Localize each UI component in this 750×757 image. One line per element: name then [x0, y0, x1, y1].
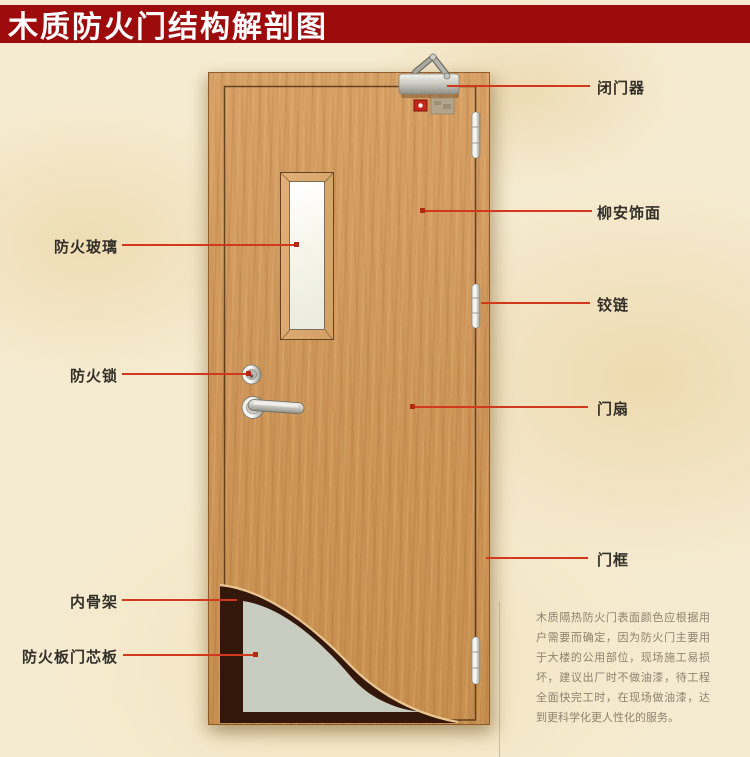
label-fire-lock: 防火锁: [0, 365, 118, 386]
label-hinge: 铰链: [597, 294, 629, 315]
callout-line-fire-glass: [122, 244, 297, 246]
callout-line-door-leaf: [412, 406, 588, 408]
callout-dot-lauan-veneer: [420, 208, 425, 213]
callout-dot-door-leaf: [410, 404, 415, 409]
callout-line-door-frame: [486, 557, 588, 559]
door-closer: [399, 54, 459, 98]
label-door-closer: 闭门器: [597, 77, 645, 98]
label-fire-glass: 防火玻璃: [0, 236, 118, 257]
poster: 木质防火门结构解剖图: [0, 0, 750, 757]
name-plate: [431, 98, 454, 114]
hinge-bottom: [472, 637, 480, 684]
label-door-leaf: 门扇: [597, 398, 629, 419]
alarm-indicator: [414, 100, 427, 111]
hinge-middle: [472, 284, 480, 328]
product-description: 木质隔热防火门表面颜色应根据用户需要而确定，因为防火门主要用于大楼的公用部位，现…: [536, 608, 710, 728]
callout-line-lauan-veneer: [423, 210, 592, 212]
callout-line-fire-board-core: [123, 654, 257, 656]
callout-line-hinge: [481, 302, 590, 304]
callout-line-door-closer: [447, 85, 590, 87]
callout-line-fire-lock: [122, 373, 250, 375]
callout-dot-fire-glass: [294, 242, 299, 247]
callout-line-inner-frame: [122, 599, 237, 601]
description-divider: [499, 602, 500, 757]
label-fire-board-core: 防火板门芯板: [0, 646, 118, 667]
callout-dot-fire-lock: [246, 371, 251, 376]
label-inner-frame: 内骨架: [0, 591, 118, 612]
hinge-top: [472, 112, 480, 158]
vision-panel-bevels: [281, 173, 333, 340]
label-door-frame: 门框: [597, 549, 629, 570]
label-lauan-veneer: 柳安饰面: [597, 202, 661, 223]
callout-dot-fire-board-core: [253, 652, 258, 657]
door-handle: [242, 397, 304, 419]
